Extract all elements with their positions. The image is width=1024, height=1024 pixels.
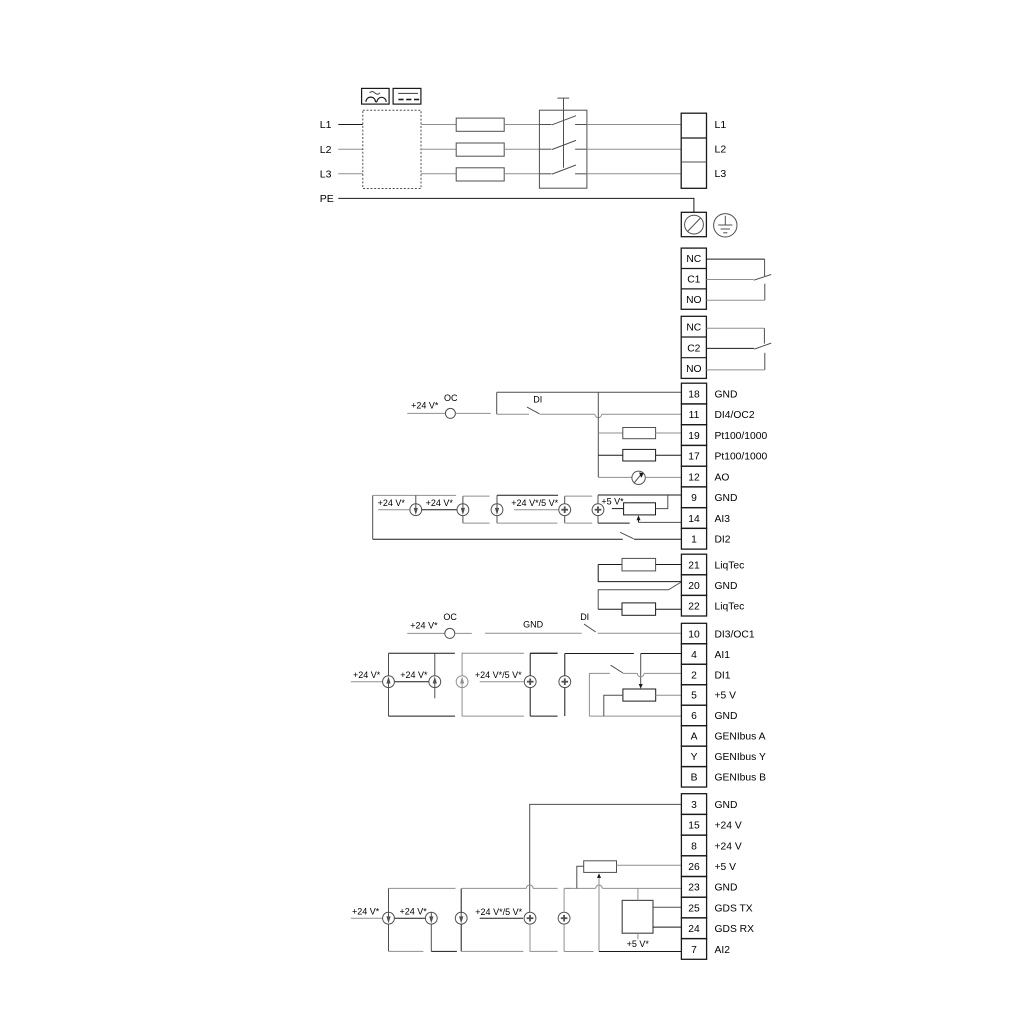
- svg-text:+24 V*/5 V*: +24 V*/5 V*: [511, 498, 558, 508]
- svg-text:15: 15: [688, 821, 700, 832]
- svg-text:DI: DI: [533, 395, 542, 405]
- svg-text:5: 5: [691, 691, 697, 702]
- svg-text:OC: OC: [443, 612, 457, 622]
- svg-text:19: 19: [688, 431, 700, 442]
- svg-text:NO: NO: [686, 364, 701, 375]
- svg-text:L3: L3: [320, 169, 332, 181]
- svg-text:2: 2: [691, 670, 697, 681]
- svg-text:L1: L1: [715, 119, 727, 131]
- svg-text:+24 V*: +24 V*: [410, 620, 438, 630]
- svg-text:GENIbus A: GENIbus A: [715, 732, 766, 743]
- svg-text:7: 7: [691, 945, 697, 956]
- svg-text:14: 14: [688, 514, 700, 525]
- svg-text:+24 V*: +24 V*: [426, 498, 454, 508]
- svg-text:AI2: AI2: [715, 945, 731, 956]
- svg-text:LiqTec: LiqTec: [715, 560, 745, 571]
- svg-text:DI4/OC2: DI4/OC2: [715, 410, 755, 421]
- svg-text:A: A: [691, 732, 698, 743]
- svg-text:GDS TX: GDS TX: [715, 903, 753, 914]
- svg-text:Y: Y: [691, 752, 698, 763]
- svg-text:L2: L2: [715, 143, 727, 155]
- svg-text:25: 25: [688, 903, 700, 914]
- svg-text:OC: OC: [444, 393, 458, 403]
- svg-text:NC: NC: [686, 323, 701, 334]
- svg-text:11: 11: [689, 410, 700, 421]
- svg-text:18: 18: [688, 389, 700, 400]
- svg-text:+24 V*: +24 V*: [411, 400, 439, 410]
- svg-text:26: 26: [688, 862, 700, 873]
- svg-text:23: 23: [688, 883, 700, 894]
- svg-text:1: 1: [691, 535, 697, 546]
- svg-text:PE: PE: [320, 193, 334, 205]
- svg-text:L2: L2: [320, 144, 332, 156]
- svg-text:+24 V*: +24 V*: [400, 907, 428, 917]
- svg-text:DI2: DI2: [715, 535, 731, 546]
- svg-text:L1: L1: [320, 119, 332, 131]
- svg-text:GND: GND: [715, 711, 738, 722]
- svg-text:GND: GND: [715, 800, 738, 811]
- svg-text:AI3: AI3: [715, 514, 731, 525]
- svg-text:+24 V: +24 V: [715, 821, 742, 832]
- svg-text:20: 20: [688, 581, 700, 592]
- svg-text:+5 V: +5 V: [715, 862, 737, 873]
- svg-text:21: 21: [688, 560, 700, 571]
- svg-text:+24 V*/5 V*: +24 V*/5 V*: [475, 670, 522, 680]
- svg-text:GND: GND: [715, 581, 738, 592]
- svg-text:+5 V*: +5 V*: [601, 496, 624, 506]
- svg-text:+24 V*: +24 V*: [352, 907, 380, 917]
- svg-text:LiqTec: LiqTec: [715, 602, 745, 613]
- svg-text:Pt100/1000: Pt100/1000: [715, 431, 768, 442]
- svg-text:NC: NC: [686, 254, 701, 265]
- svg-text:DI3/OC1: DI3/OC1: [715, 629, 755, 640]
- svg-text:B: B: [691, 773, 698, 784]
- svg-text:Pt100/1000: Pt100/1000: [715, 452, 768, 463]
- svg-text:NO: NO: [686, 295, 701, 306]
- svg-text:AO: AO: [715, 472, 730, 483]
- svg-text:GND: GND: [523, 619, 544, 629]
- svg-text:+24 V: +24 V: [715, 841, 742, 852]
- svg-text:6: 6: [691, 711, 697, 722]
- svg-text:22: 22: [688, 602, 700, 613]
- svg-text:DI: DI: [580, 612, 589, 622]
- svg-text:GND: GND: [715, 493, 738, 504]
- svg-text:AI1: AI1: [715, 650, 731, 661]
- svg-text:3: 3: [691, 800, 697, 811]
- svg-text:L3: L3: [715, 168, 727, 180]
- svg-text:24: 24: [688, 924, 700, 935]
- svg-text:17: 17: [688, 452, 700, 463]
- svg-text:GND: GND: [715, 389, 738, 400]
- svg-text:C1: C1: [687, 275, 700, 286]
- svg-text:C2: C2: [687, 343, 700, 354]
- svg-text:+5 V: +5 V: [715, 691, 737, 702]
- svg-text:+24 V*: +24 V*: [353, 670, 381, 680]
- svg-text:10: 10: [688, 629, 700, 640]
- svg-text:GND: GND: [715, 883, 738, 894]
- svg-text:+24 V*: +24 V*: [378, 498, 406, 508]
- svg-text:GENIbus B: GENIbus B: [715, 773, 767, 784]
- svg-text:8: 8: [691, 841, 697, 852]
- svg-text:DI1: DI1: [715, 670, 731, 681]
- svg-text:+24 V*: +24 V*: [400, 670, 428, 680]
- svg-text:12: 12: [688, 472, 700, 483]
- svg-text:GDS RX: GDS RX: [715, 924, 755, 935]
- svg-text:9: 9: [691, 493, 697, 504]
- svg-text:GENIbus Y: GENIbus Y: [715, 752, 766, 763]
- svg-text:+24 V*/5 V*: +24 V*/5 V*: [475, 907, 522, 917]
- svg-text:4: 4: [691, 650, 697, 661]
- svg-text:+5 V*: +5 V*: [627, 939, 650, 949]
